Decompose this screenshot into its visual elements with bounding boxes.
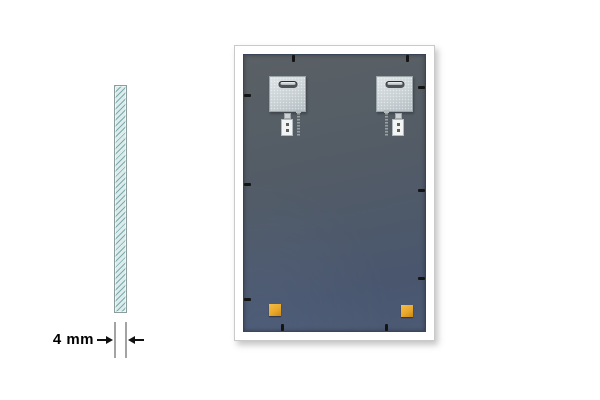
arrow-shaft	[135, 339, 144, 341]
anchor-hole	[397, 123, 400, 126]
screw-shaft	[385, 113, 388, 136]
anchor-hole	[286, 129, 289, 132]
mirror-product-illustration: 4 mm	[0, 0, 600, 400]
frame-clip	[244, 183, 251, 186]
thickness-dimension-label: 4 mm	[46, 331, 94, 348]
anchor-hole	[397, 129, 400, 132]
frame-clip	[418, 189, 425, 192]
frame-clip	[281, 324, 284, 331]
screw-icon	[296, 110, 301, 136]
arrow-shaft	[97, 339, 106, 341]
mounting-hardware-right	[384, 110, 404, 136]
dimension-arrow-right-icon	[97, 336, 113, 344]
dimension-extension-line-right	[125, 322, 127, 358]
dimension-extension-line-left	[114, 322, 116, 358]
arrow-head	[106, 336, 113, 344]
hanging-bracket-left	[269, 76, 306, 112]
frame-clip	[385, 324, 388, 331]
screw-shaft	[297, 113, 300, 136]
hanging-bracket-right	[376, 76, 413, 112]
frame-clip	[244, 298, 251, 301]
wall-anchor-icon	[281, 113, 293, 136]
screw-icon	[384, 110, 389, 136]
dimension-arrow-left-icon	[128, 336, 144, 344]
bracket-slot-highlight	[387, 82, 402, 85]
bracket-slot-icon	[278, 81, 297, 88]
frame-clip	[244, 94, 251, 97]
wall-anchor-icon	[392, 113, 404, 136]
frame-clip	[292, 55, 295, 62]
frame-clip	[418, 86, 425, 89]
bracket-slot-icon	[385, 81, 404, 88]
arrow-head	[128, 336, 135, 344]
glass-cross-section	[114, 85, 127, 313]
mounting-hardware-left	[281, 110, 301, 136]
corner-pad-left	[269, 304, 281, 316]
mirror-frame	[234, 45, 435, 341]
frame-clip	[418, 277, 425, 280]
anchor-body	[281, 119, 293, 136]
frame-clip	[406, 55, 409, 62]
anchor-hole	[286, 123, 289, 126]
bracket-slot-highlight	[280, 82, 295, 85]
anchor-body	[392, 119, 404, 136]
mirror-back-panel	[243, 54, 426, 332]
corner-pad-right	[401, 305, 413, 317]
